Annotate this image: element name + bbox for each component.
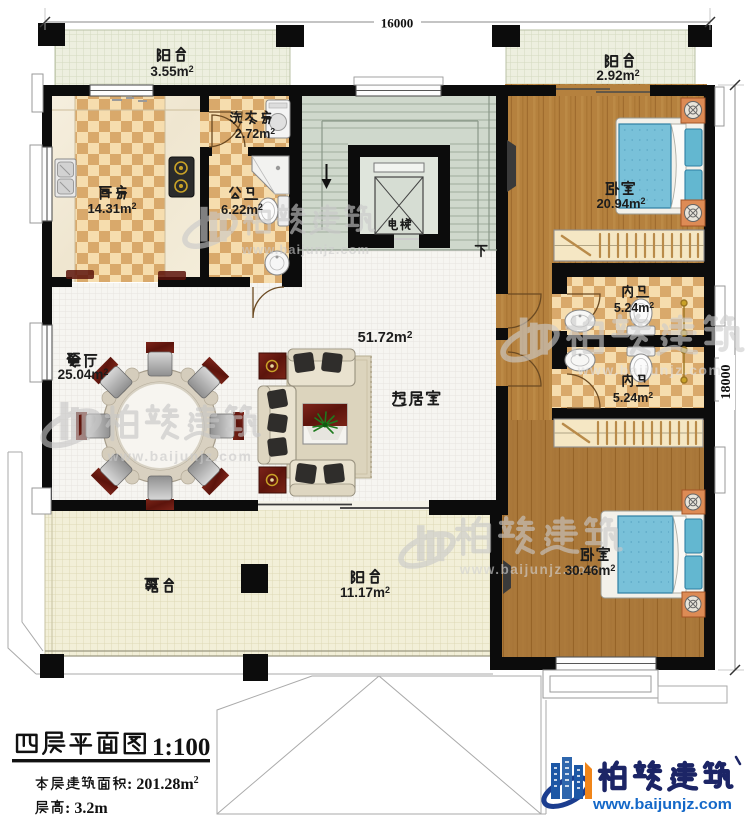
svg-text:1:100: 1:100 xyxy=(152,734,210,761)
svg-text:www.baijunjz.com: www.baijunjz.com xyxy=(107,448,253,464)
svg-text:www.baijunjz.com: www.baijunjz.com xyxy=(241,242,370,257)
svg-text:11.17m2: 11.17m2 xyxy=(340,585,390,600)
svg-text:www.baijunjz.com: www.baijunjz.com xyxy=(592,796,732,813)
svg-text:14.31m2: 14.31m2 xyxy=(87,201,136,216)
svg-text:5.24m2: 5.24m2 xyxy=(614,300,654,315)
svg-text:30.46m2: 30.46m2 xyxy=(565,563,616,578)
svg-text:16000: 16000 xyxy=(381,16,414,31)
svg-text:51.72m2: 51.72m2 xyxy=(358,330,413,346)
svg-text:5.24m2: 5.24m2 xyxy=(613,390,653,405)
svg-text:25.04m2: 25.04m2 xyxy=(58,367,109,382)
svg-text:3.55m2: 3.55m2 xyxy=(150,64,193,79)
svg-text:: 3.2m: : 3.2m xyxy=(65,800,108,817)
svg-text:20.94m2: 20.94m2 xyxy=(596,196,645,211)
svg-text:6.22m2: 6.22m2 xyxy=(221,202,263,217)
svg-text:: 201.28m2: : 201.28m2 xyxy=(127,775,199,793)
svg-text:2.72m2: 2.72m2 xyxy=(235,126,275,141)
svg-text:www.baijunjz.com: www.baijunjz.com xyxy=(577,362,723,378)
svg-text:2.92m2: 2.92m2 xyxy=(596,68,639,83)
